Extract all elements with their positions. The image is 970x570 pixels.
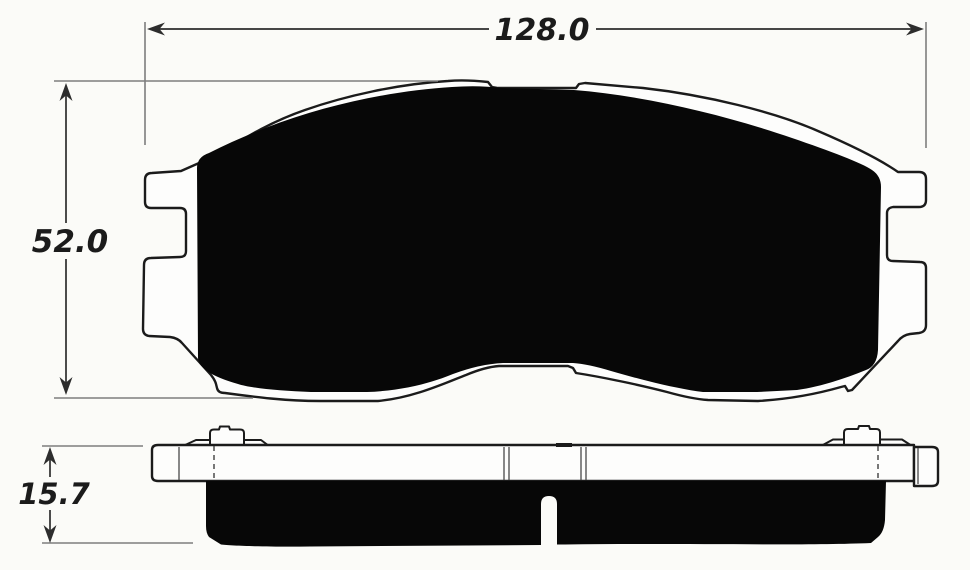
top-edge-tick — [556, 443, 572, 447]
side-view — [152, 426, 938, 547]
right-spring-clip — [844, 426, 880, 446]
thickness-dimension-label: 15.7 — [18, 477, 90, 511]
width-dimension-label: 128.0 — [495, 13, 590, 48]
friction-material-side — [206, 481, 886, 547]
backing-plate-side — [152, 445, 914, 481]
height-dimension-label: 52.0 — [32, 224, 109, 260]
brake-pad-technical-drawing: 128.0 52.0 — [0, 0, 970, 570]
front-view — [143, 80, 926, 401]
left-spring-clip — [210, 427, 244, 447]
drawing-svg: 128.0 52.0 — [0, 0, 970, 570]
